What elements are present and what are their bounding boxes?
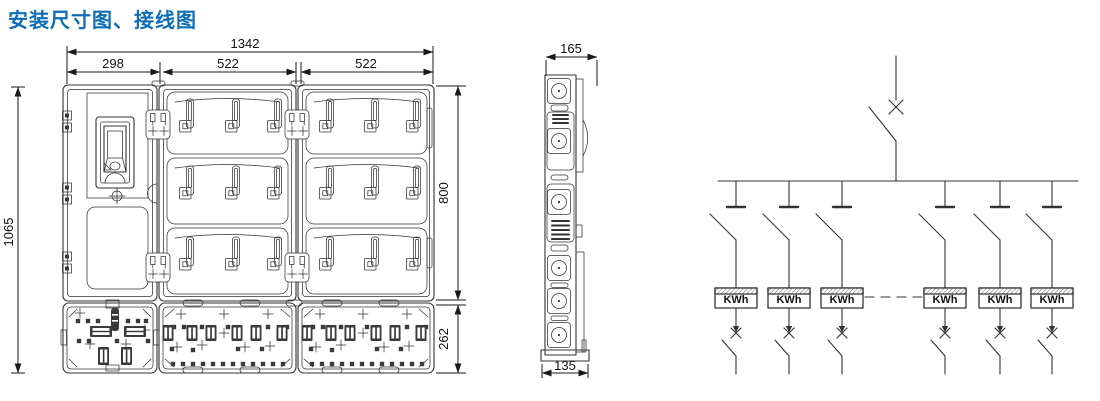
side-view: 165 135	[541, 41, 597, 378]
terminal-box-middle	[159, 300, 302, 373]
door-hinges	[63, 111, 72, 273]
meter-branch-5	[974, 181, 1021, 374]
meter-window-device	[96, 117, 134, 188]
dim-right-width: 522	[355, 56, 377, 71]
kwh-meter-label: KWh	[1039, 294, 1064, 306]
meter-branch-4	[919, 181, 966, 374]
dim-depth-top: 165	[560, 41, 582, 56]
dim-body-height: 800	[436, 182, 451, 204]
seal-latch	[407, 166, 421, 199]
dim-left-width: 298	[102, 56, 124, 71]
panel-joint-clamps	[146, 110, 309, 282]
seal-latch	[320, 99, 334, 132]
seal-latch	[268, 166, 282, 199]
dim-terminal-height: 262	[436, 328, 451, 350]
joint-clamp	[285, 253, 309, 282]
seal-latch	[268, 237, 282, 270]
meter-branch-2	[763, 181, 810, 374]
meter-panel-right	[306, 92, 432, 294]
meter-branch-6	[1026, 181, 1073, 374]
side-knob	[548, 190, 571, 215]
kwh-meter-label: KWh	[932, 294, 957, 306]
lower-door	[87, 207, 148, 289]
seal-latch	[407, 237, 421, 270]
seal-latch	[226, 99, 240, 132]
joint-clamp	[285, 110, 309, 139]
joint-clamp	[146, 253, 170, 282]
seal-latch	[320, 166, 334, 199]
incoming-feeder-breaker	[869, 56, 903, 181]
seal-latch	[407, 99, 421, 132]
terminal-box-right	[298, 300, 434, 373]
side-knob	[548, 289, 571, 314]
side-knob	[548, 256, 571, 281]
side-profile	[541, 75, 589, 361]
side-knob	[548, 129, 571, 154]
meter-branch-3	[816, 181, 863, 374]
control-panel-left	[63, 93, 149, 289]
side-dimension-lines	[542, 57, 597, 378]
seal-latch	[365, 166, 379, 199]
seal-latch	[180, 99, 194, 132]
technical-drawing: 1342 298 522 522 1065 800 262	[0, 0, 1100, 401]
fixing-point-icon	[109, 188, 125, 204]
kwh-meter-label: KWh	[987, 294, 1012, 306]
front-dimension-lines	[11, 46, 466, 373]
kwh-meter-label: KWh	[829, 294, 854, 306]
seal-latch	[180, 237, 194, 270]
meter-panel-middle	[167, 92, 288, 294]
seal-latch	[365, 99, 379, 132]
joint-clamp	[146, 110, 170, 139]
front-view: 1342 298 522 522 1065 800 262	[1, 36, 466, 373]
dim-mid-width: 522	[217, 56, 239, 71]
side-knob	[548, 323, 571, 348]
dim-total-height: 1065	[1, 218, 16, 247]
meter-branch-1	[710, 181, 757, 374]
kwh-meter-label: KWh	[723, 294, 748, 306]
seal-latch	[180, 166, 194, 199]
kwh-meter-label: KWh	[776, 294, 801, 306]
page: 安装尺寸图、接线图	[0, 0, 1100, 401]
seal-latch	[320, 237, 334, 270]
dim-overall-width: 1342	[231, 36, 260, 51]
wiring-diagram: KWh KWh KWh KWh KWh KWh	[710, 56, 1078, 374]
side-knob	[548, 79, 571, 104]
seal-latch	[268, 99, 282, 132]
terminal-box-left	[61, 300, 159, 373]
dim-depth-bottom: 135	[554, 358, 576, 373]
seal-latch	[365, 237, 379, 270]
seal-latch	[226, 166, 240, 199]
seal-latch	[226, 237, 240, 270]
